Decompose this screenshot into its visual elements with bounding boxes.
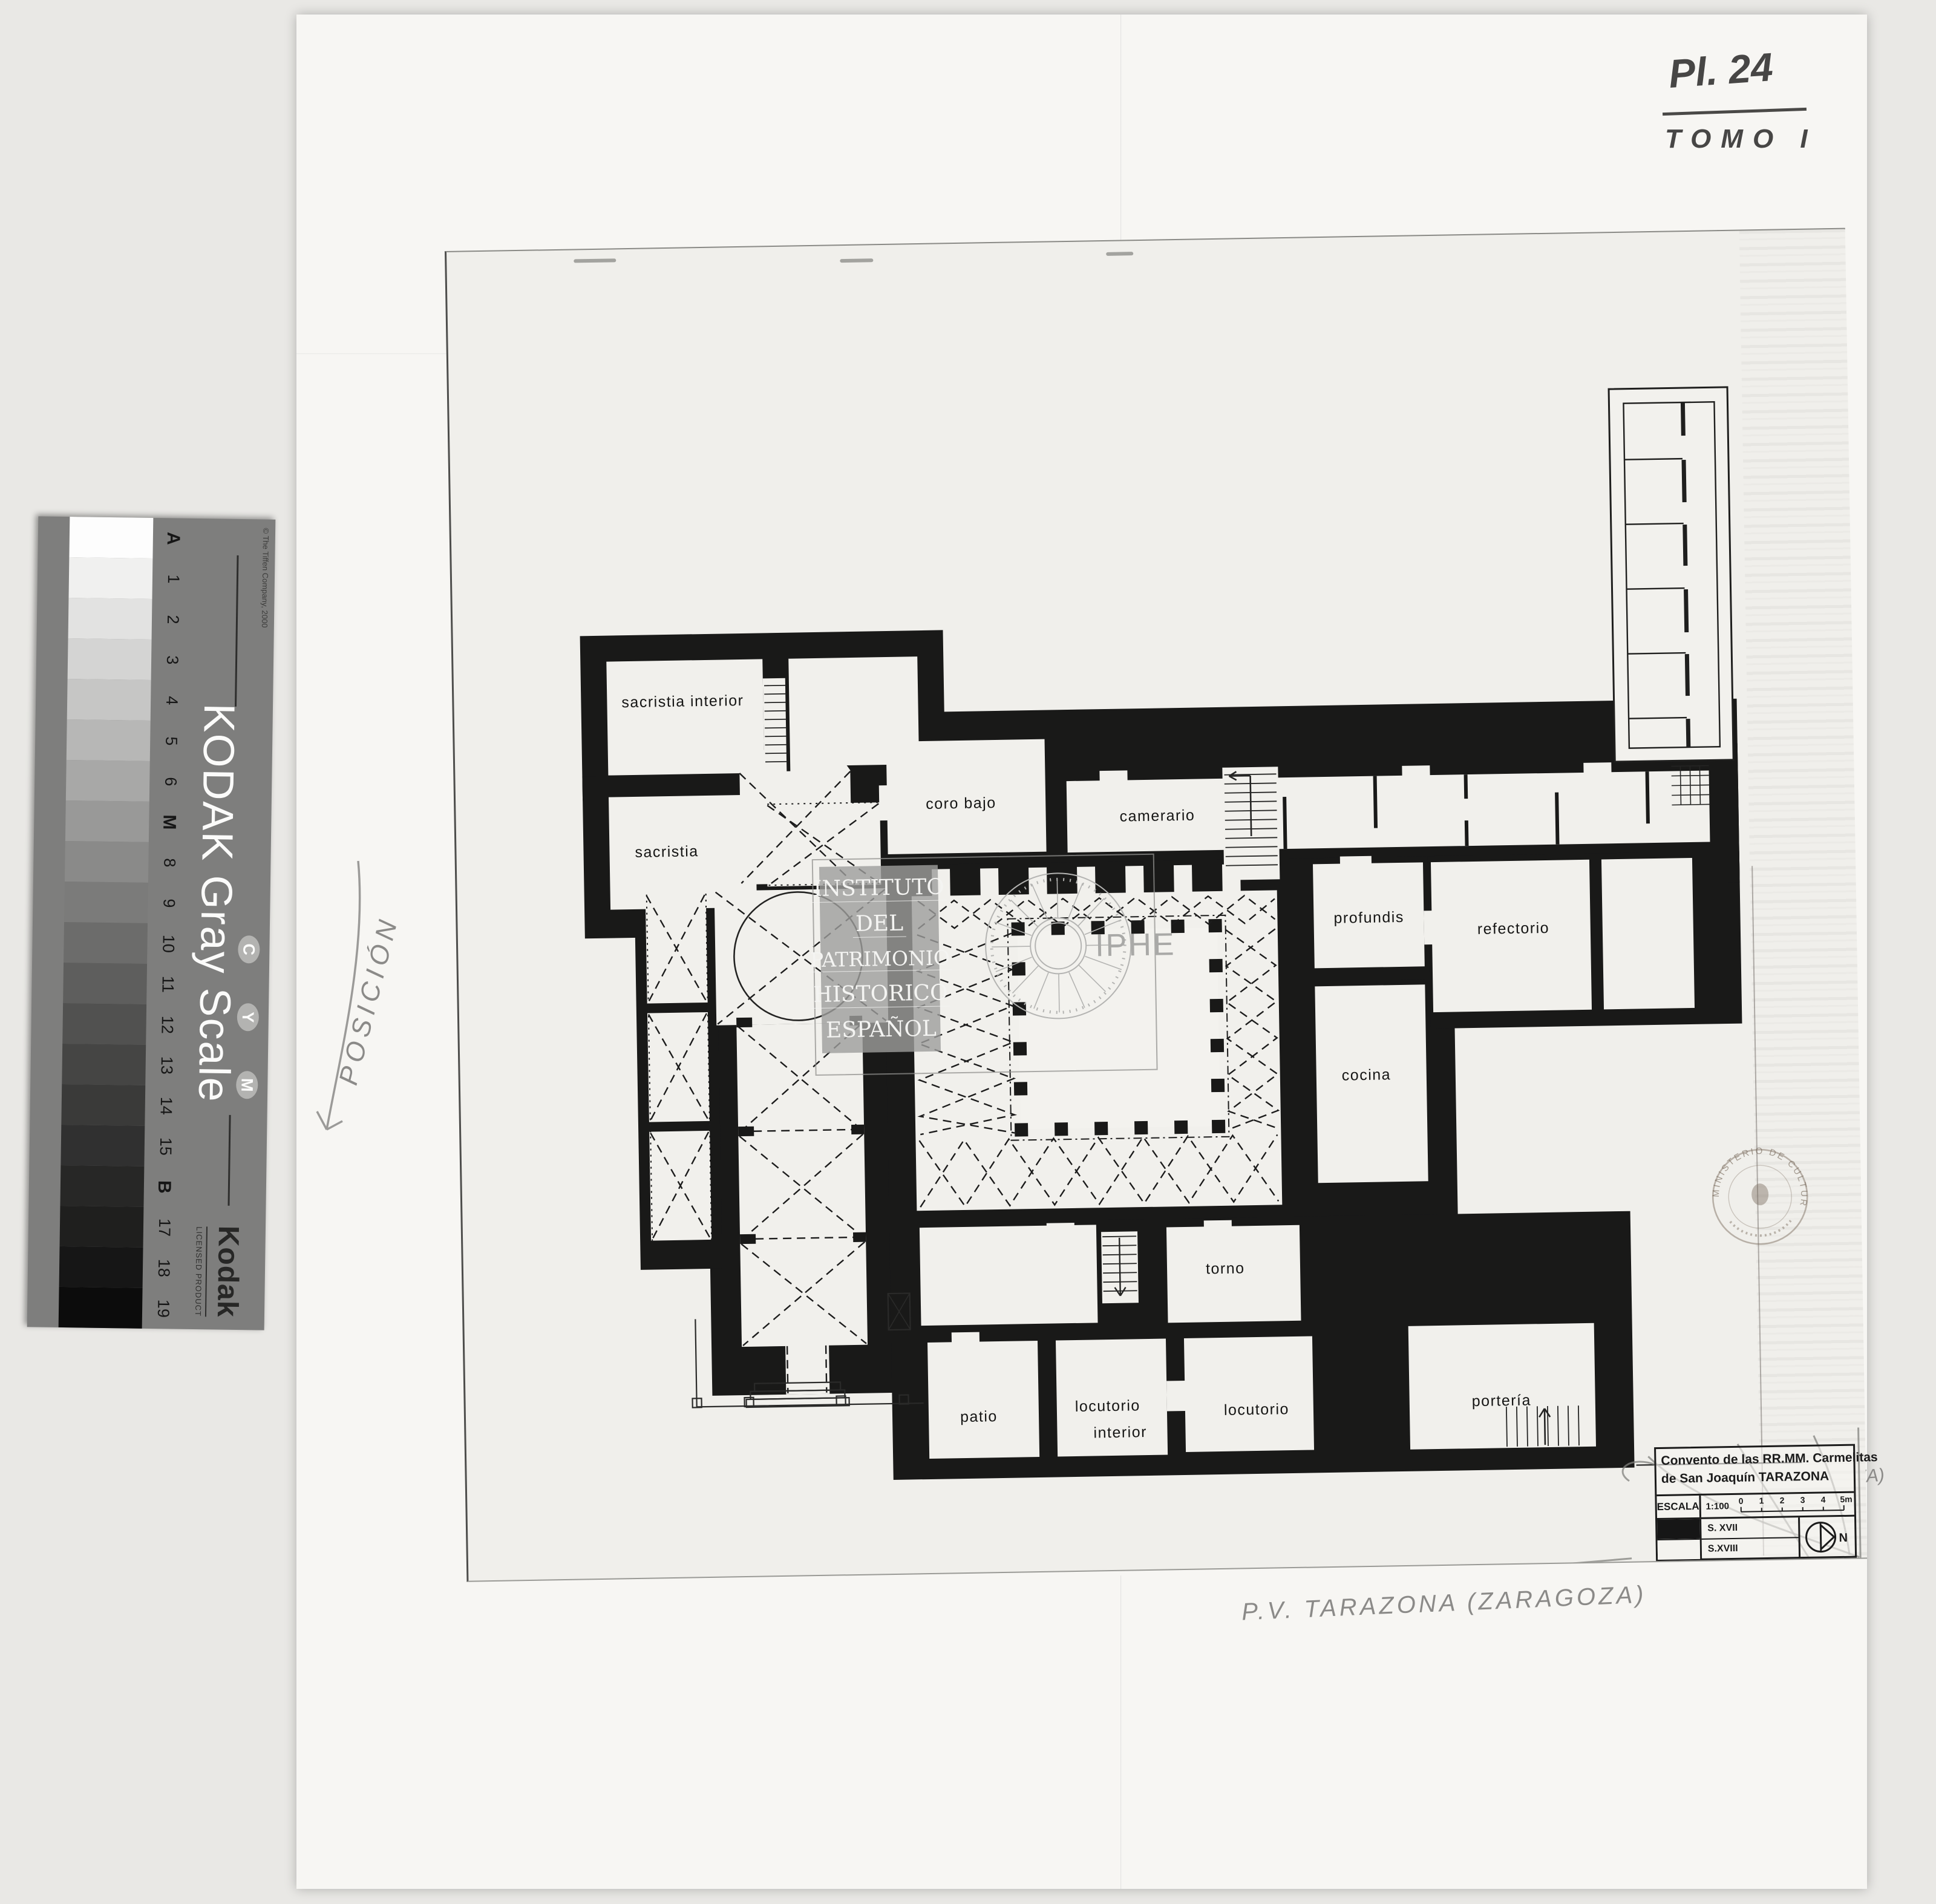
plate-number-handwriting: Pl. 24 (1667, 44, 1774, 97)
volume-handwriting: TOMO I (1665, 124, 1817, 154)
label-porteria: portería (1472, 1392, 1532, 1410)
scale-tick: 4 (1821, 1494, 1826, 1504)
magenta-circle: M (236, 1071, 258, 1099)
fold-crease-top (1120, 15, 1122, 269)
label-torno: torno (1206, 1260, 1245, 1277)
watermark-line: INSTITUTO (811, 875, 947, 903)
legend-label-s17: S. XVII (1701, 1517, 1799, 1540)
scale-tick: 0 (1739, 1496, 1744, 1506)
legend-row: S. XVII S.XVIII N (1657, 1517, 1855, 1560)
legend-swatches (1657, 1519, 1702, 1560)
label-sacristia-interior: sacristia interior (621, 692, 744, 711)
escala-label: ESCALA (1656, 1496, 1701, 1518)
label-refectorio: refectorio (1477, 920, 1550, 938)
legend-swatch-18th (1658, 1539, 1701, 1560)
fold-crease-bottom (1120, 1575, 1122, 1889)
posicion-arrow (302, 856, 393, 1165)
label-locutorio-interior-2: interior (1093, 1424, 1147, 1441)
label-coro-bajo: coro bajo (926, 794, 996, 813)
cyan-circle: C (238, 935, 260, 963)
scale-tick: 2 (1780, 1496, 1785, 1505)
scale-tick: 3 (1800, 1495, 1805, 1505)
watermark-line: ESPAÑOL (823, 1016, 939, 1043)
scale-row: ESCALA 1:100 0 1 2 3 4 5m (1656, 1493, 1854, 1520)
label-cocina: cocina (1342, 1066, 1391, 1084)
legend-swatch-17th (1657, 1519, 1700, 1539)
label-locutorio: locutorio (1224, 1401, 1289, 1419)
label-locutorio-interior: locutorio (1075, 1397, 1140, 1415)
yellow-letter: Y (238, 1012, 257, 1022)
card-rule-right (227, 1115, 231, 1206)
gray-patch-strip (59, 517, 154, 1329)
card-title: KODAK Gray Scale (189, 703, 244, 1103)
compass-icon: N (1804, 1519, 1851, 1555)
label-sacristia: sacristia (635, 843, 699, 861)
photocopy-sheet: sacristia interior sacristia coro bajo c… (445, 228, 1867, 1582)
north-label: N (1839, 1531, 1848, 1545)
watermark-line: HISTORICO (811, 980, 950, 1009)
scale-bar: 0 1 2 3 4 5m (1735, 1494, 1857, 1516)
yellow-circle: Y (237, 1003, 260, 1031)
card-rule-left (235, 555, 238, 707)
floor-plan-drawing: sacristia interior sacristia coro bajo c… (446, 229, 1867, 1581)
fold-crease-left (296, 353, 448, 355)
scale-ratio: 1:100 (1705, 1501, 1729, 1512)
label-profundis: profundis (1333, 909, 1404, 927)
cyan-letter: C (240, 943, 258, 955)
licensed-product-label: LICENSED PRODUCT (194, 1226, 208, 1317)
legend-label-s18: S.XVIII (1702, 1538, 1799, 1559)
watermark-text-panel: INSTITUTO DEL PATRIMONIO HISTORICO ESPAÑ… (819, 865, 941, 1053)
label-camerario: camerario (1119, 807, 1195, 825)
title-block: Convento de las RR.MM. Carmelitas de San… (1654, 1444, 1857, 1561)
title-line-2: de San Joaquín TARAZONA (1661, 1470, 1830, 1487)
title-block-title: Convento de las RR.MM. Carmelitas de San… (1656, 1446, 1854, 1496)
legend-labels: S. XVII S.XVIII (1701, 1517, 1800, 1559)
scale-tick: 5m (1840, 1494, 1853, 1504)
magenta-letter: M (238, 1078, 257, 1092)
wing-thin-walls (1609, 387, 1733, 762)
scanned-archive-page: © The Tiffen Company, 2000 KODAK Gray Sc… (0, 0, 1936, 1904)
card-copyright: © The Tiffen Company, 2000 (260, 528, 270, 627)
watermark-line: DEL (853, 911, 906, 938)
scale-tick: 1 (1759, 1496, 1764, 1505)
kodak-logo: Kodak (211, 1225, 245, 1317)
north-compass: N (1800, 1517, 1855, 1557)
title-line-1: Convento de las RR.MM. Carmelitas (1661, 1450, 1878, 1468)
label-patio: patio (960, 1408, 998, 1425)
kodak-gray-scale-card: © The Tiffen Company, 2000 KODAK Gray Sc… (27, 516, 276, 1330)
watermark-line: PATRIMONIO (808, 946, 953, 973)
